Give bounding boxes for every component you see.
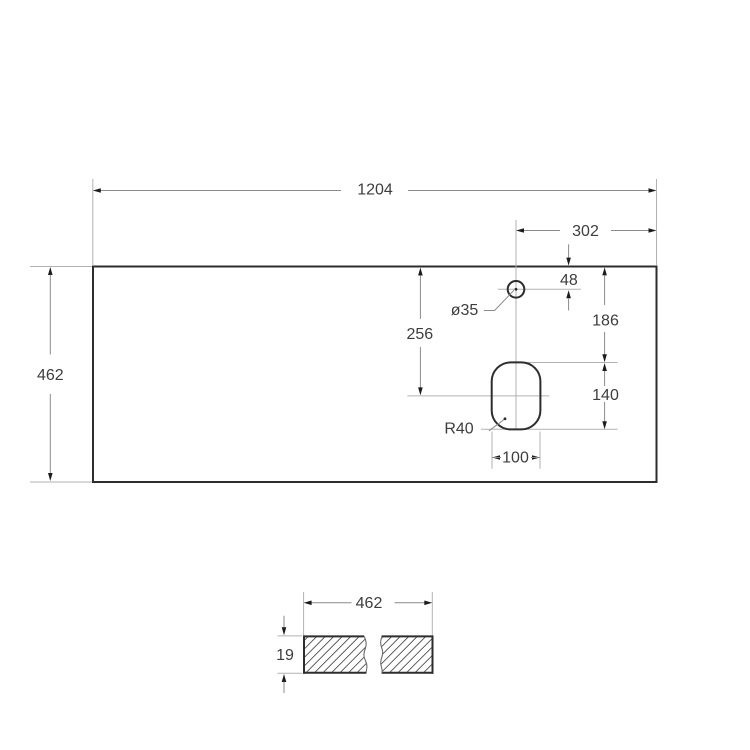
svg-text:462: 462 xyxy=(37,367,64,384)
svg-text:48: 48 xyxy=(560,272,578,289)
svg-text:100: 100 xyxy=(502,450,529,467)
svg-text:1204: 1204 xyxy=(357,182,393,199)
svg-text:140: 140 xyxy=(592,387,619,404)
svg-text:462: 462 xyxy=(356,595,383,612)
svg-text:256: 256 xyxy=(406,326,433,343)
svg-text:302: 302 xyxy=(572,223,599,240)
svg-text:19: 19 xyxy=(276,647,294,664)
svg-text:R40: R40 xyxy=(444,421,473,438)
svg-text:186: 186 xyxy=(592,313,619,330)
svg-text:ø35: ø35 xyxy=(451,302,479,319)
